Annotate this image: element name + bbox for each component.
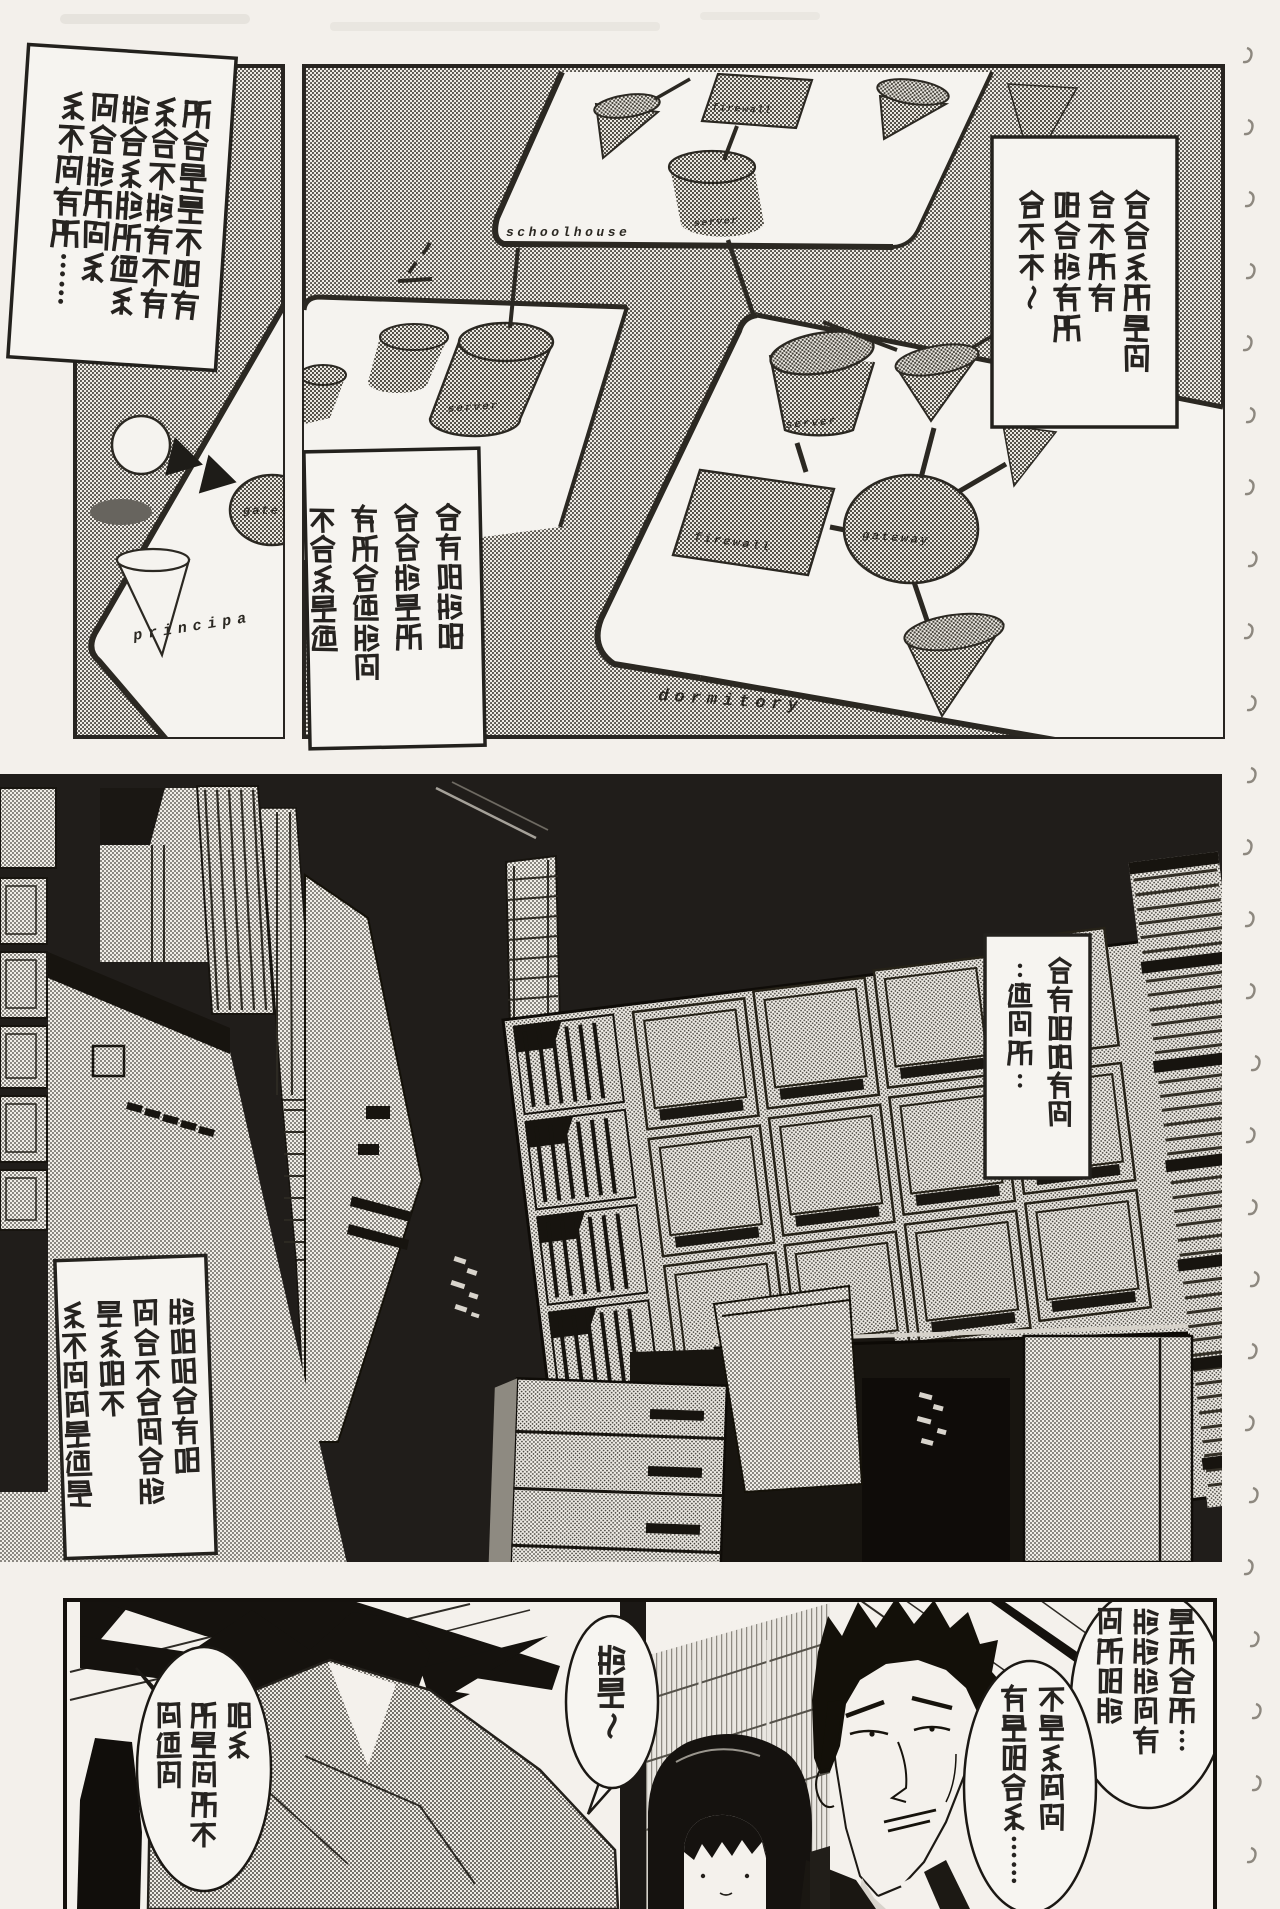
svg-text:schoolhouse: schoolhouse: [506, 225, 630, 240]
svg-text:gate: gate: [243, 504, 280, 518]
